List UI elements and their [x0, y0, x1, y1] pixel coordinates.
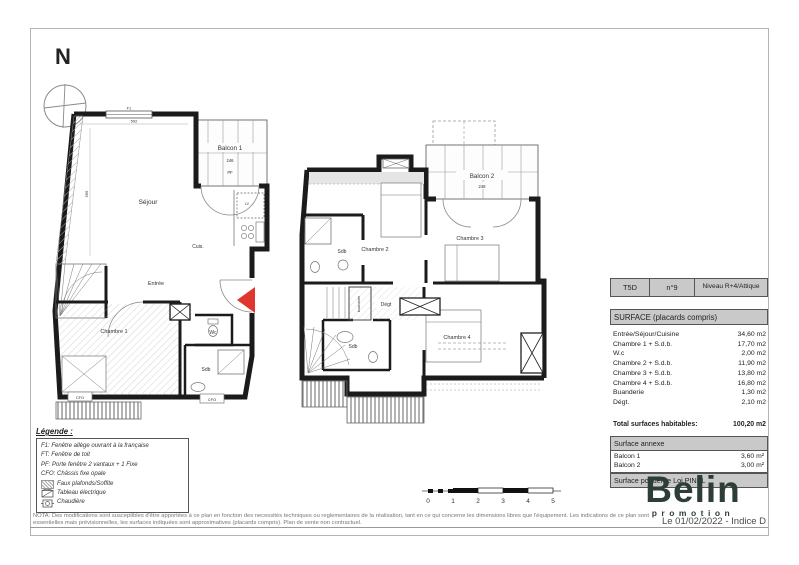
- chambre2-bed: [381, 183, 421, 237]
- sdb-fixtures: [191, 350, 244, 392]
- legend-title: Légende :: [36, 427, 189, 436]
- scale-tick-0: 0: [426, 498, 430, 505]
- dim-label-balcon2: 248: [479, 184, 487, 189]
- buanderie-closet: buanderie: [349, 287, 371, 320]
- legend-item: FT: Fenêtre de toit: [41, 451, 184, 460]
- dim-label-height: 595: [84, 190, 89, 197]
- surface-rows: Entrée/Séjour/Cuisine34,60 m2 Chambre 1 …: [610, 325, 768, 408]
- surface-section-title: SURFACE (placards compris): [610, 309, 768, 325]
- room-label-sejour: Séjour: [139, 199, 159, 206]
- plan-date: Le 01/02/2022 - Indice D: [657, 516, 766, 527]
- scale-bar: 0 1 2 3 4 5: [420, 483, 565, 507]
- floor-plan-level-2: Balcon 2 248: [293, 115, 553, 435]
- legend-item: F1: Fenêtre allège ouvrant à la français…: [41, 442, 184, 451]
- apartment-level: Niveau R+4/Attique: [695, 279, 767, 296]
- table-row: W.c2,00 m2: [613, 349, 766, 359]
- frame-bottom-line: [30, 527, 768, 528]
- table-row: Entrée/Séjour/Cuisine34,60 m2: [613, 330, 766, 340]
- room-label-sdb-bas: Sdb: [349, 344, 358, 350]
- room-label-wc: Wc: [209, 330, 217, 336]
- scale-tick-4: 4: [526, 498, 530, 505]
- cfo-label-2: CFO: [208, 397, 216, 402]
- scale-tick-3: 3: [501, 498, 505, 505]
- room-label-cuisine: Cuis.: [192, 244, 203, 250]
- railing-hatch: [56, 402, 141, 419]
- chambre3-bed: [445, 245, 499, 281]
- boiler-icon: [41, 499, 54, 508]
- legend-item: PF: Porte fenêtre 2 vantaux + 1 Fixe: [41, 461, 184, 470]
- room-label-sdb1: Sdb: [202, 367, 211, 373]
- annexe-section-title: Surface annexe: [610, 436, 768, 451]
- railing-hatch-middle: [347, 397, 424, 423]
- apartment-type: T5D: [611, 279, 650, 296]
- legend-item: Chaudière: [41, 498, 184, 507]
- small-steps: [327, 287, 345, 318]
- total-label: Total surfaces habitables:: [613, 421, 698, 428]
- roof-window-ft: [383, 159, 409, 168]
- kitchen-counters: [234, 190, 264, 246]
- table-row: Chambre 2 + S.d.b.11,90 m2: [613, 359, 766, 369]
- electrical-panel-icon: [41, 489, 54, 498]
- logo-name: Belin: [616, 471, 770, 508]
- window-f1: F1: [106, 106, 152, 118]
- window-label-f1: F1: [127, 106, 132, 111]
- scale-tick-5: 5: [551, 498, 555, 505]
- cfo-label-1: CFO: [76, 395, 84, 400]
- total-value: 100,20 m2: [733, 421, 766, 428]
- apartment-number: n°9: [650, 279, 695, 296]
- table-row: Chambre 1 + S.d.b.17,70 m2: [613, 340, 766, 350]
- legend: Légende : F1: Fenêtre allège ouvrant à l…: [36, 427, 189, 513]
- table-row: Chambre 4 + S.d.b.16,80 m2: [613, 379, 766, 389]
- soffit-band: [309, 172, 424, 184]
- total-row: Total surfaces habitables: 100,20 m2: [610, 421, 768, 428]
- room-label-chambre1: Chambre 1: [100, 329, 127, 335]
- legend-box: F1: Fenêtre allège ouvrant à la français…: [36, 438, 189, 513]
- interior-walls: [302, 199, 544, 378]
- balcony-1: Balcon 1 246 PF: [194, 120, 267, 186]
- belin-logo: Belin promotion: [616, 471, 770, 518]
- legend-item: CFO: Châssis fixe opale: [41, 470, 184, 479]
- surface-table-header: T5D n°9 Niveau R+4/Attique: [610, 278, 768, 297]
- floor-plan-level-1: Balcon 1 246 PF F1 595 592 LV: [48, 106, 273, 426]
- window-label-pf: PF: [227, 170, 233, 175]
- table-row: Buanderie1,30 m2: [613, 388, 766, 398]
- north-label: N: [55, 44, 71, 70]
- scale-tick-1: 1: [451, 498, 455, 505]
- legend-item: Faux plafonds/Soffite: [41, 480, 184, 489]
- room-label-entree: Entrée: [148, 281, 164, 287]
- table-row: Chambre 3 + S.d.b.13,80 m2: [613, 369, 766, 379]
- faux-plafond-hatch-icon: [41, 480, 54, 489]
- roof-edge-dashes: [426, 384, 542, 390]
- table-row: Balcon 13,60 m²: [614, 452, 764, 461]
- table-row: Dégt.2,10 m2: [613, 398, 766, 408]
- balcony2-door-arcs: [443, 199, 521, 227]
- chambre1-bed: [62, 356, 106, 392]
- room-label-chambre4: Chambre 4: [443, 335, 470, 341]
- entrance-arrow-icon: [237, 287, 255, 313]
- room-label-balcon1: Balcon 1: [218, 145, 243, 152]
- room-label-balcon2: Balcon 2: [470, 173, 495, 180]
- room-label-buanderie: buanderie: [357, 296, 361, 312]
- roof-dashed-outline: [433, 121, 495, 145]
- railing-hatch-left: [302, 381, 347, 407]
- balcony-2: Balcon 2 248: [426, 145, 538, 199]
- appliance-label-lv: LV: [245, 202, 250, 206]
- scale-tick-2: 2: [476, 498, 480, 505]
- room-label-degt: Dégt: [381, 302, 392, 308]
- surface-table: T5D n°9 Niveau R+4/Attique SURFACE (plac…: [610, 278, 768, 488]
- room-label-chambre2: Chambre 2: [361, 247, 388, 253]
- room-label-sdb-haut: Sdb: [338, 249, 347, 255]
- dim-label-width: 592: [131, 119, 138, 124]
- degt-label-group: Dégt: [375, 299, 398, 308]
- legend-item: Tableau électrique: [41, 489, 184, 498]
- sdb-upper-fixtures: [305, 218, 348, 273]
- balcony-door-arcs: [201, 186, 259, 215]
- closet-box: [170, 304, 190, 320]
- room-label-chambre3: Chambre 3: [456, 236, 483, 242]
- dim-label-balcon1: 246: [227, 158, 235, 163]
